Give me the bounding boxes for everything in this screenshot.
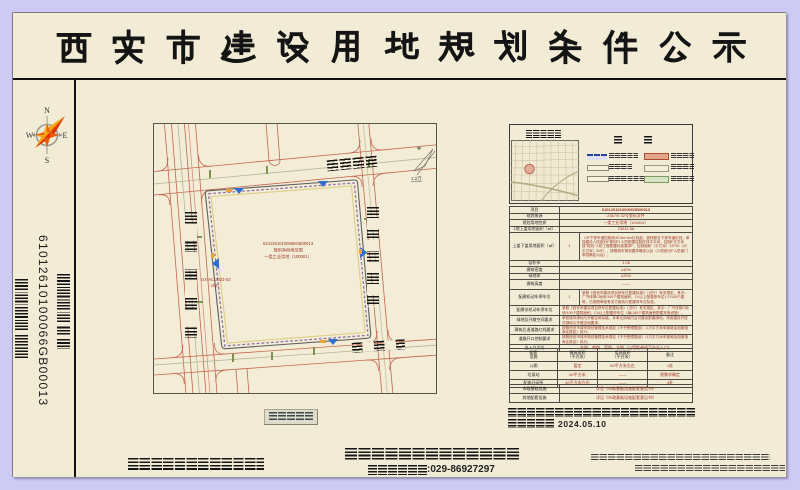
svg-text:（4B）: （4B） <box>208 283 222 288</box>
svg-text:W: W <box>26 131 34 140</box>
svg-text:规划净用地范围: 规划净用地范围 <box>273 247 302 254</box>
svg-text:N: N <box>44 106 50 115</box>
svg-text:S: S <box>45 156 49 165</box>
svg-text:GX-HL-2023-02: GX-HL-2023-02 <box>201 277 231 282</box>
svg-text:61012610100066GB00013: 61012610100066GB00013 <box>263 241 314 246</box>
svg-text:E: E <box>63 131 68 140</box>
svg-text:一类工业用地（100001）: 一类工业用地（100001） <box>264 253 311 260</box>
